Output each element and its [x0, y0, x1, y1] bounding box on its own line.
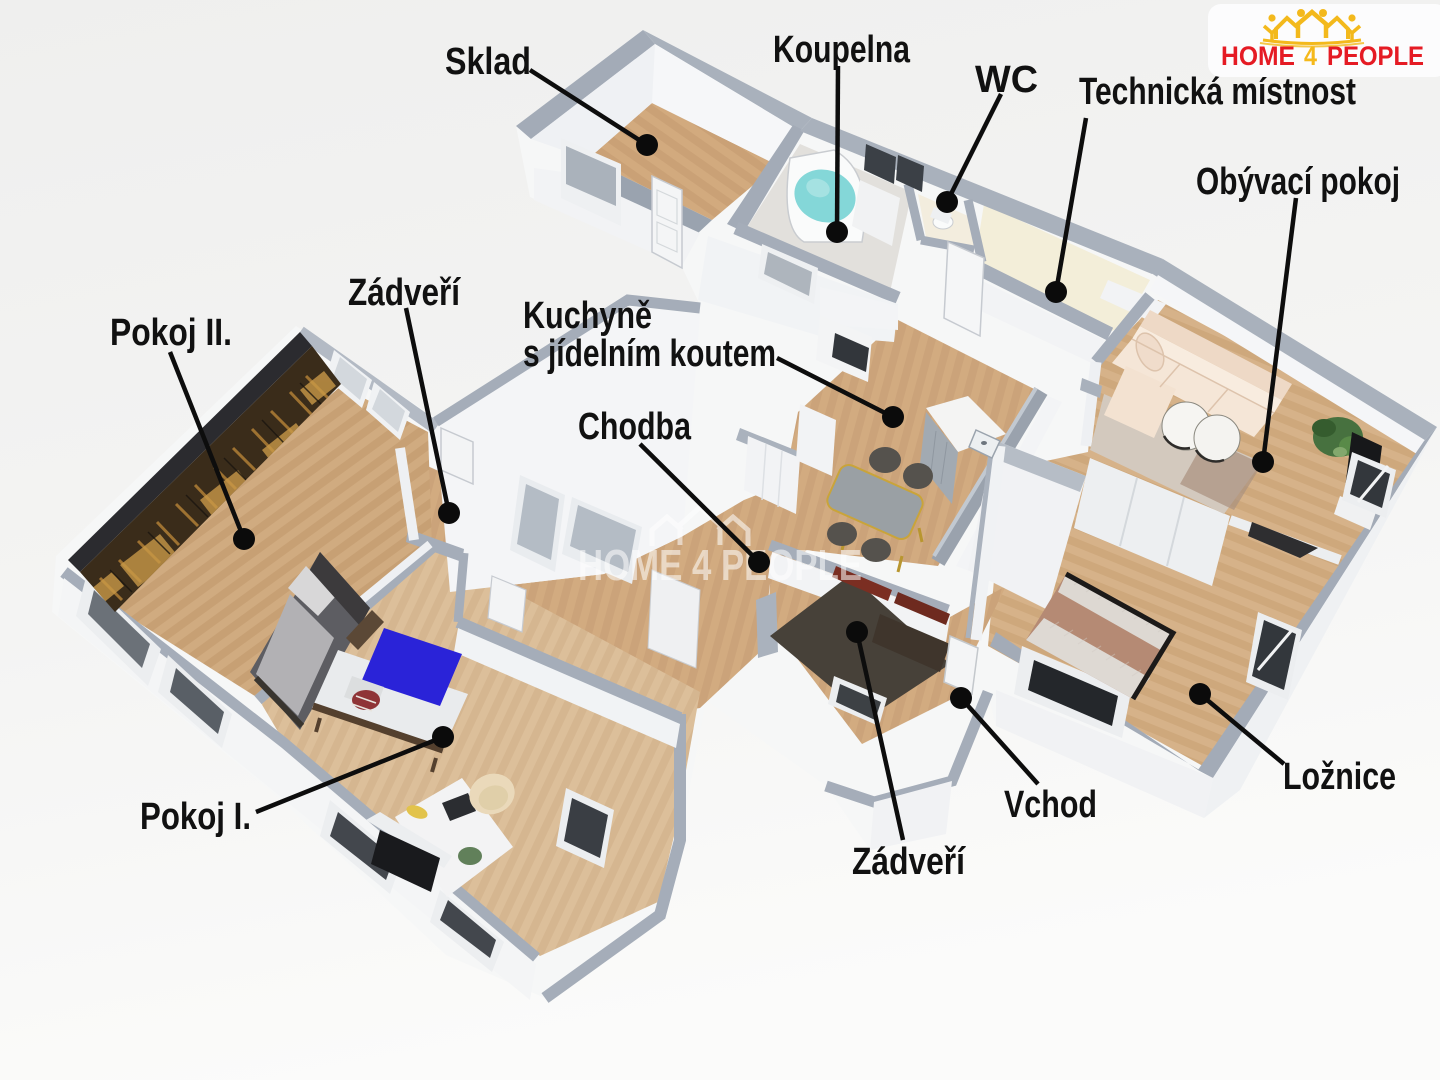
svg-text:Technická místnost: Technická místnost	[1079, 71, 1356, 113]
svg-text:WC: WC	[975, 59, 1038, 101]
svg-text:Zádveří: Zádveří	[348, 272, 461, 314]
svg-text:4: 4	[1304, 41, 1317, 71]
svg-text:Koupelna: Koupelna	[773, 29, 911, 71]
svg-text:Chodba: Chodba	[578, 406, 692, 448]
svg-text:Zádveří: Zádveří	[852, 841, 966, 883]
svg-text:PEOPLE: PEOPLE	[1327, 41, 1424, 71]
svg-text:Pokoj II.: Pokoj II.	[110, 312, 232, 354]
svg-text:s jídelním koutem: s jídelním koutem	[523, 333, 776, 375]
svg-text:Ložnice: Ložnice	[1283, 756, 1396, 798]
svg-text:HOME 4 PEOPLE: HOME 4 PEOPLE	[578, 541, 862, 590]
svg-text:HOME: HOME	[1221, 41, 1295, 71]
svg-text:Obývací pokoj: Obývací pokoj	[1196, 161, 1400, 203]
svg-text:Vchod: Vchod	[1004, 784, 1097, 826]
svg-text:Sklad: Sklad	[445, 41, 531, 83]
svg-text:Pokoj I.: Pokoj I.	[140, 796, 251, 838]
svg-text:Kuchyně: Kuchyně	[523, 295, 652, 337]
